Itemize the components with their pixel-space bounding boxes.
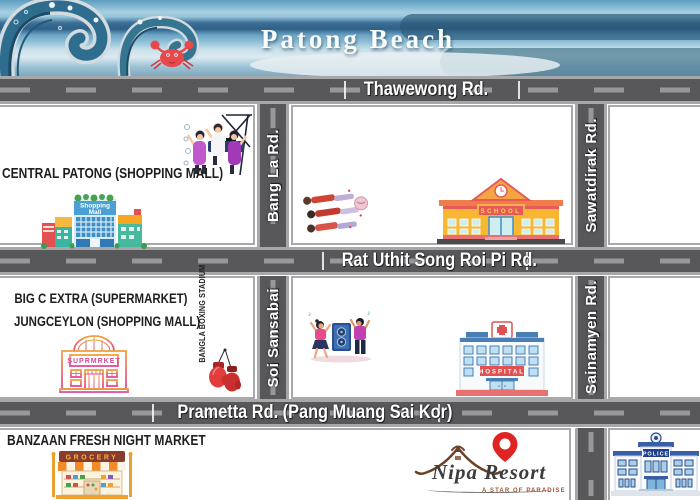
road-label-sawatdirak: Sawatdirak Rd. [583,118,600,233]
road-soi-sansabai: Soi Sansabai [257,276,289,399]
lane-marking [518,81,520,99]
page-title: Patong Beach [238,24,478,55]
beach-dancers-icon [300,185,370,239]
dj-party-icon: ♪ ♪ [307,308,375,364]
label-big-c-extra: BIG C EXTRA (SUPERMARKET) [14,287,188,310]
road-label-thawewong: Thawewong Rd. [361,79,492,101]
lane-dashes [0,88,700,93]
location-pin-icon [490,431,520,463]
sand-band [250,52,560,76]
road-label-prametta: Prametta Rd. (Pang Muang Sai Kor) [177,402,414,424]
hospital-sign-text: HOSPITAL [479,370,525,376]
nipa-resort-tagline: A STAR OF PARADISE [482,488,566,494]
school-icon: SCHOOL [433,175,569,245]
block-empty-east [608,276,700,399]
hospital-icon: HOSPITAL [438,320,566,398]
grocery-store-icon: GROCERY [46,447,138,500]
block-central-patong: CENTRAL PATONG (SHOPPING MALL) Shopping … [0,105,255,245]
label-big-c-jungceylon: BIG C EXTRA (SUPERMARKET) JUNGCEYLON (SH… [14,287,188,333]
block-school: SCHOOL [291,105,573,245]
supermarket-icon: SUPRMRKET [48,330,140,394]
road-thawewong: Thawewong Rd. [0,76,700,104]
road-label-soi-sansabai: Soi Sansabai [265,288,282,387]
block-police: POLICE [608,428,700,500]
lane-marking [152,404,154,422]
nipa-resort-logo: Nipa Resort A STAR OF PARADISE [408,430,572,500]
police-station-icon: POLICE [611,431,700,499]
grocery-sign-text: GROCERY [66,455,119,462]
police-sign-text: POLICE [643,452,669,458]
road-label-sainamyen: Sainamyen Rd. [583,280,600,394]
music-note-icon: ♪ [367,310,371,317]
block-banzaan-nipa: BANZAAN FRESH NIGHT MARKET GROCERY [0,428,571,500]
block-jungceylon: BIG C EXTRA (SUPERMARKET) JUNGCEYLON (SH… [0,276,255,399]
boxing-gloves-icon [205,348,245,396]
road-sawatdirak: Sawatdirak Rd. [575,104,607,247]
road-sainamyen: Sainamyen Rd. [575,276,607,399]
road-label-rat-uthit: Rat Uthit Song Roi Pi Rd. [342,250,511,272]
patong-beach-map: Patong Beach Thawewong Rd. Rat Uthit Son… [0,0,700,500]
road-prametta: Prametta Rd. (Pang Muang Sai Kor) [0,399,700,427]
road-bang-la: Bang La Rd. [257,104,289,247]
road-rat-uthit: Rat Uthit Song Roi Pi Rd. [0,247,700,275]
beach-banner: Patong Beach [0,0,700,76]
supermarket-sign-text: SUPRMRKET [67,358,120,365]
music-note-icon: ♪ [308,311,312,318]
mall-sign-text: Mall [89,209,102,216]
lane-marking [322,252,324,270]
crab-icon [148,36,196,72]
block-hospital: ♪ ♪ HOSPITAL [291,276,573,399]
ocean-wave-illustration [0,0,270,76]
block-empty-northeast [608,105,700,245]
lane-dashes [589,432,594,496]
nipa-resort-name: Nipa Resort [432,460,546,485]
school-sign-text: SCHOOL [481,209,522,215]
road-label-bang-la: Bang La Rd. [265,129,282,222]
road-sainamyen-south [575,428,607,500]
shopping-mall-icon: Shopping Mall [38,189,150,249]
lane-marking [344,81,346,99]
label-central-patong: CENTRAL PATONG (SHOPPING MALL) [2,165,223,182]
